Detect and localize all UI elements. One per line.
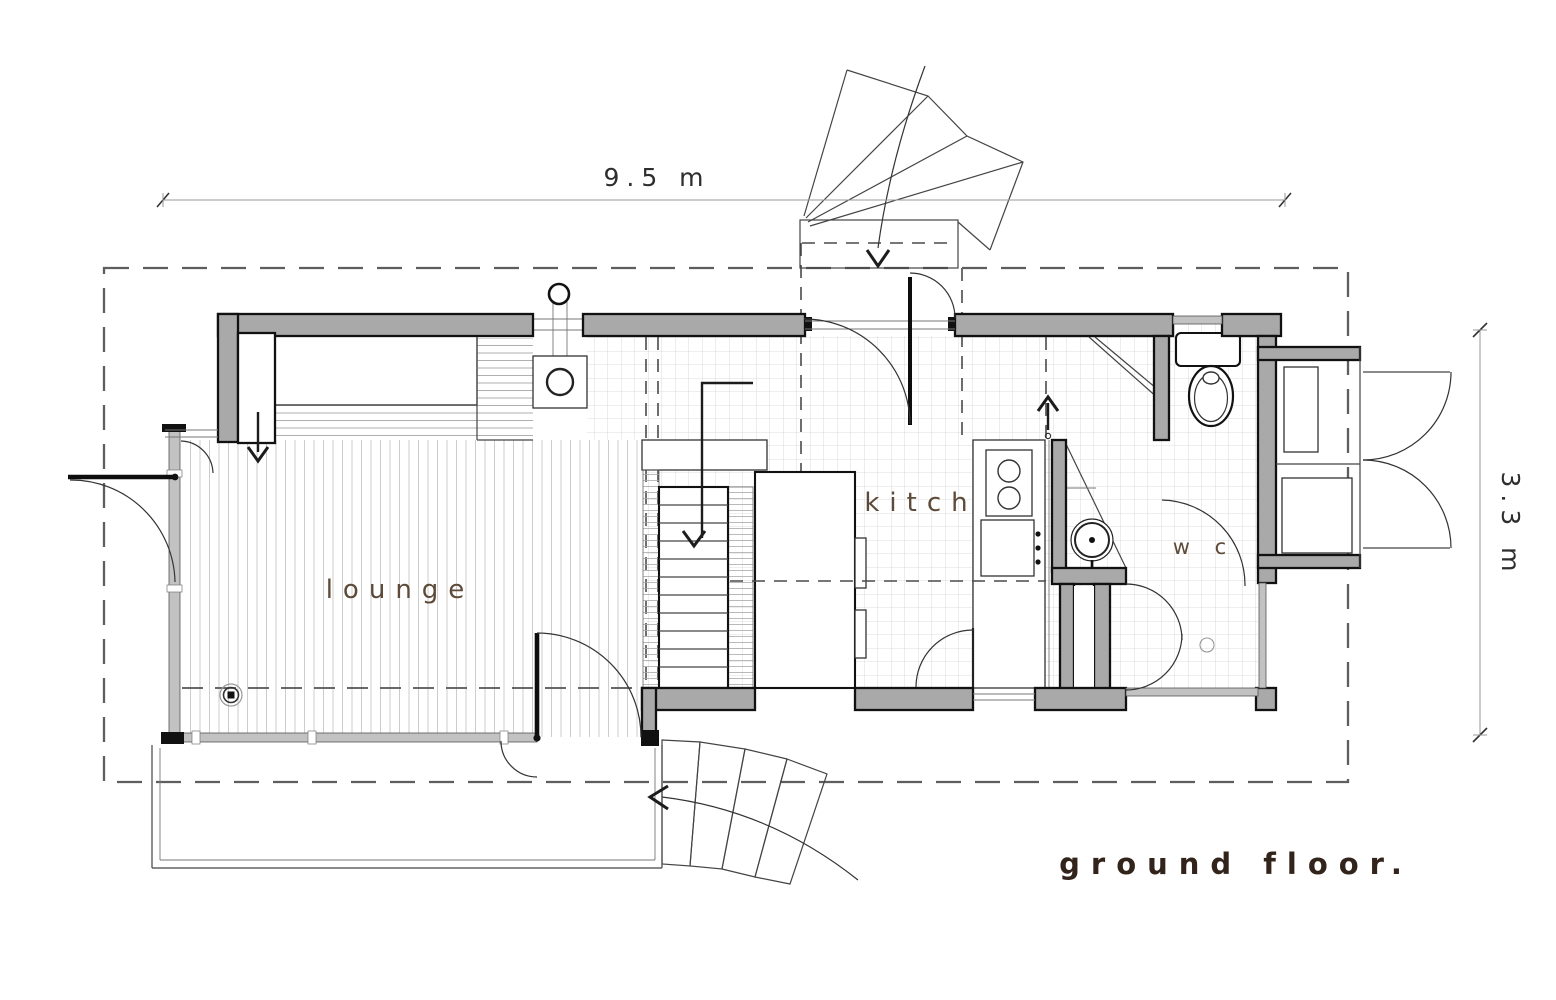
dimension-depth-label: 3.3 m xyxy=(1496,471,1525,578)
oven-icon xyxy=(981,520,1041,576)
floor-socket-icon xyxy=(220,684,242,706)
east-storage-porch xyxy=(1258,347,1451,568)
storage-double-doors xyxy=(1363,372,1451,548)
sw-corner-mullion xyxy=(161,732,184,744)
storage-shelf-upper xyxy=(1284,367,1318,452)
fan-steps-south xyxy=(650,740,858,884)
lounge-room-label: lounge xyxy=(326,575,475,605)
south-wall-vestibule xyxy=(1035,688,1126,710)
west-inner-leaf xyxy=(238,333,275,443)
stair-flight xyxy=(659,487,728,688)
dimension-depth: 3.3 m xyxy=(1473,323,1525,742)
fan-steps-north xyxy=(800,66,1023,268)
kitchen-room-label: kitch xyxy=(864,488,977,518)
south-wall-kitchen xyxy=(855,688,973,710)
south-window-wall xyxy=(169,733,537,742)
wc-room-label: w c xyxy=(1173,535,1235,559)
south-east-corner xyxy=(1256,688,1276,710)
dimension-width: 9.5 m xyxy=(157,163,1291,207)
south-deck xyxy=(152,745,662,868)
east-wall xyxy=(1258,336,1276,583)
north-wall-b xyxy=(583,314,805,336)
wc-stub-wall xyxy=(1154,336,1169,440)
page-title: ground floor. xyxy=(1059,847,1413,881)
north-wall-d xyxy=(1222,314,1281,336)
floor-plan-drawing: 9.5 m 3.3 m lounge kitch w c ground floo… xyxy=(0,0,1556,1000)
north-wall-c xyxy=(955,314,1173,336)
hearth-hatch xyxy=(477,338,533,440)
east-window xyxy=(1259,583,1266,688)
toilet-window xyxy=(1173,316,1222,324)
dimension-width-label: 9.5 m xyxy=(603,163,710,192)
south-wall-stairs xyxy=(642,688,755,710)
chimney-flue-icon xyxy=(533,284,583,330)
lounge-bench xyxy=(275,335,477,405)
hob-icon xyxy=(986,450,1032,516)
storage-shelf-lower xyxy=(1282,478,1352,553)
hall-storage-block xyxy=(755,472,866,688)
floor-plan-page: 9.5 m 3.3 m lounge kitch w c ground floo… xyxy=(0,0,1556,1000)
sink-partition xyxy=(1052,440,1066,572)
wood-stove xyxy=(533,300,587,408)
west-wall-leg xyxy=(218,314,238,442)
bench-step-hatch xyxy=(275,405,477,442)
wc-south-window xyxy=(1126,688,1258,696)
stair-landing xyxy=(642,440,767,470)
north-steps-walkline-arrow xyxy=(867,66,925,266)
